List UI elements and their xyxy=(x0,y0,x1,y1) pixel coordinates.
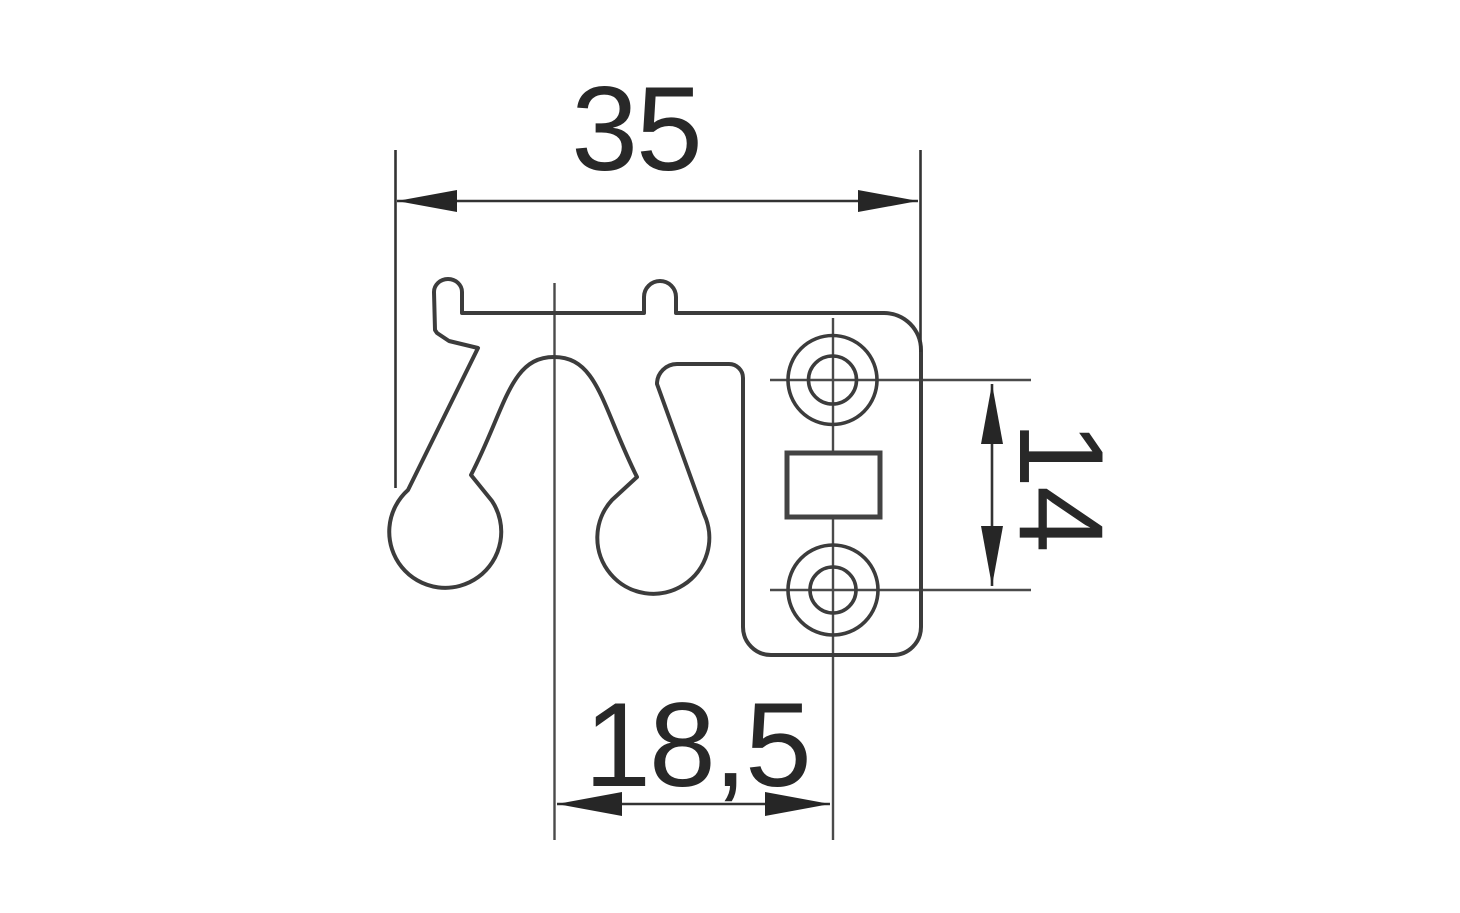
dimension-hole-spacing: 14 xyxy=(981,384,1128,586)
offset-dimension-label: 18,5 xyxy=(584,678,810,812)
square-cutout xyxy=(787,453,880,517)
width-dimension-label: 35 xyxy=(571,62,700,196)
arrowhead-left xyxy=(397,190,457,212)
technical-drawing: 35 14 18,5 xyxy=(0,0,1460,913)
spacing-dimension-label: 14 xyxy=(994,421,1128,550)
dimension-center-offset: 18,5 xyxy=(557,678,830,816)
arrowhead-right xyxy=(858,190,918,212)
drawing-canvas: 35 14 18,5 xyxy=(0,0,1460,913)
